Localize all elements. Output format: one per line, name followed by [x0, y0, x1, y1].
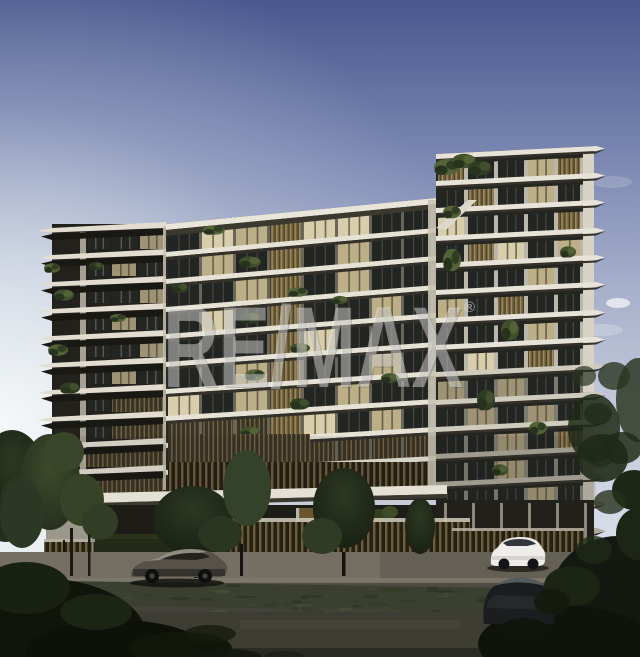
svg-text:RE/MAX: RE/MAX — [163, 284, 463, 412]
svg-text:®: ® — [464, 299, 475, 316]
